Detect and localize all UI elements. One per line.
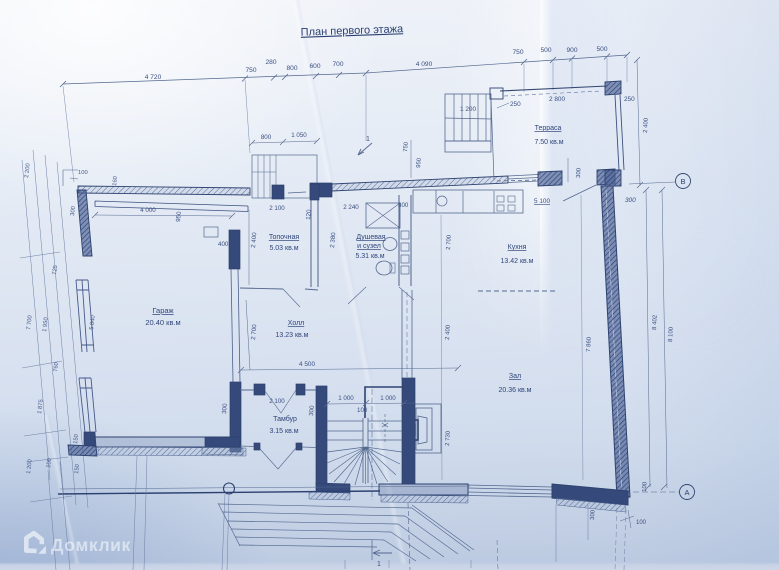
svg-text:Домклик: Домклик: [51, 535, 131, 555]
